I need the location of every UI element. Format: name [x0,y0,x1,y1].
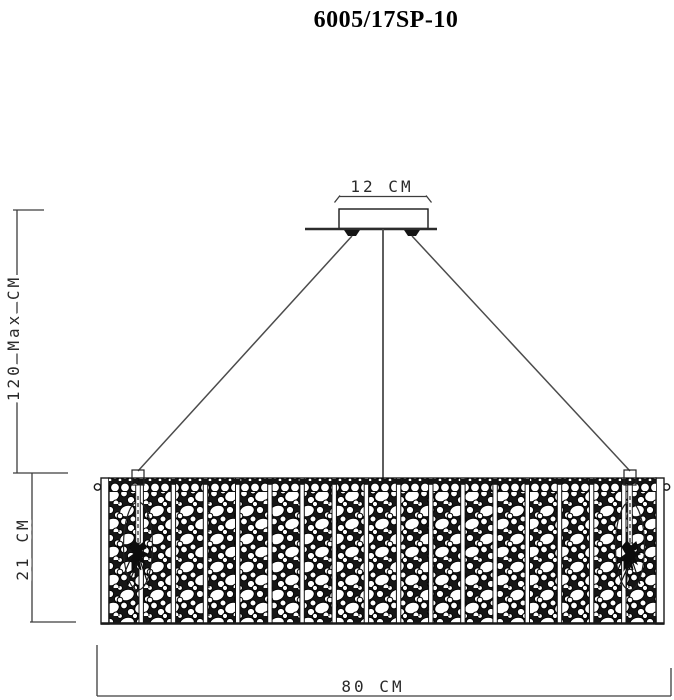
panel-divider [171,478,175,623]
technical-drawing: 6005/17SP-10 12 CM 120 Max CM 21 CM 80 C… [0,0,674,700]
divider-top-nub [139,479,144,485]
panel-divider [589,478,593,623]
divider-top-nub [396,479,401,485]
divider-top-nub [203,479,208,485]
body-height-dimension-line [30,473,76,622]
model-title: 6005/17SP-10 [314,7,459,33]
panel-divider [493,478,497,623]
cable-connector-right [404,230,420,236]
panel-divider [364,478,368,623]
panel-divider [236,478,240,623]
top-scallop-band [109,478,656,491]
panel-divider [203,478,207,623]
panel-divider [525,478,529,623]
end-cap-left [101,478,109,624]
end-cap-right [656,478,664,624]
canopy-group: 12 CM [305,177,437,236]
cable-connector-left [344,230,360,236]
panel-divider [557,478,561,623]
panel-divider [332,478,336,623]
divider-top-nub [364,479,369,485]
cable-left [138,236,352,471]
divider-top-nub [300,479,305,485]
divider-top-nub [589,479,594,485]
panel-divider [300,478,304,623]
canopy-width-label: 12 CM [350,177,413,196]
panel-divider [396,478,400,623]
cable-right [412,236,630,471]
divider-top-nub [525,479,530,485]
canopy-dimension-line [335,196,432,203]
drawing-canvas: 6005/17SP-10 12 CM 120 Max CM 21 CM 80 C… [0,0,674,700]
divider-top-nub [235,479,240,485]
bottom-dimension: 80 CM [97,645,671,696]
left-dimensions: 120 Max CM 21 CM [4,210,76,622]
divider-top-nub [493,479,498,485]
panel-divider [429,478,433,623]
max-drop-label: 120 Max CM [4,275,23,401]
divider-top-nub [460,479,465,485]
body-height-label: 21 CM [13,517,32,580]
suspension-cables [138,229,630,480]
fixture-body [94,470,669,624]
divider-top-nub [267,479,272,485]
divider-top-nub [171,479,176,485]
panel-divider [268,478,272,623]
divider-top-nub [557,479,562,485]
panel-divider [461,478,465,623]
body-width-label: 80 CM [341,677,404,696]
divider-top-nub [332,479,337,485]
end-knob-left [94,484,100,490]
divider-top-nub [428,479,433,485]
crystal-panel-field [109,478,656,623]
canopy-body [339,209,428,229]
